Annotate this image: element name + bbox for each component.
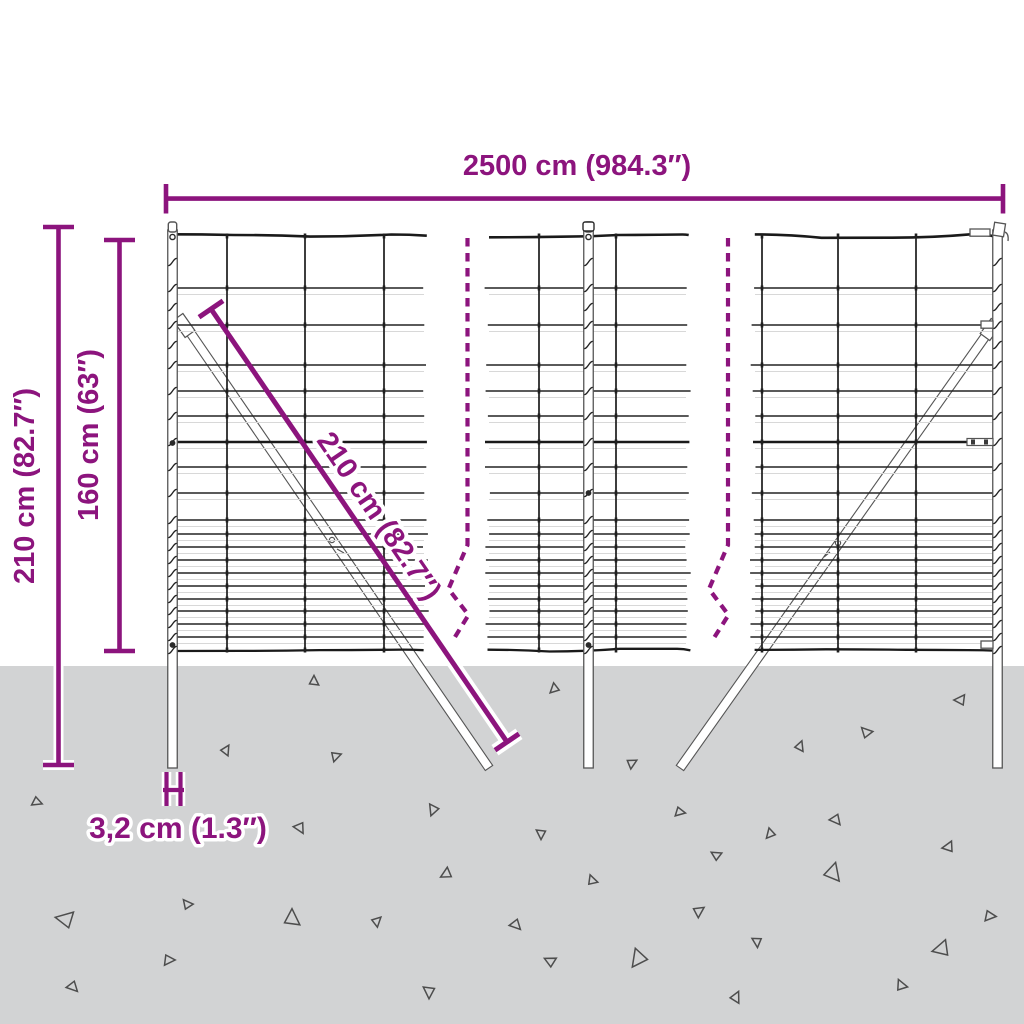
svg-text:210 cm (82.7″): 210 cm (82.7″): [9, 388, 41, 584]
svg-text:3,2 cm (1.3″): 3,2 cm (1.3″): [89, 812, 267, 845]
svg-text:160 cm (63″): 160 cm (63″): [73, 349, 105, 521]
svg-text:2500 cm (984.3″): 2500 cm (984.3″): [463, 150, 691, 182]
